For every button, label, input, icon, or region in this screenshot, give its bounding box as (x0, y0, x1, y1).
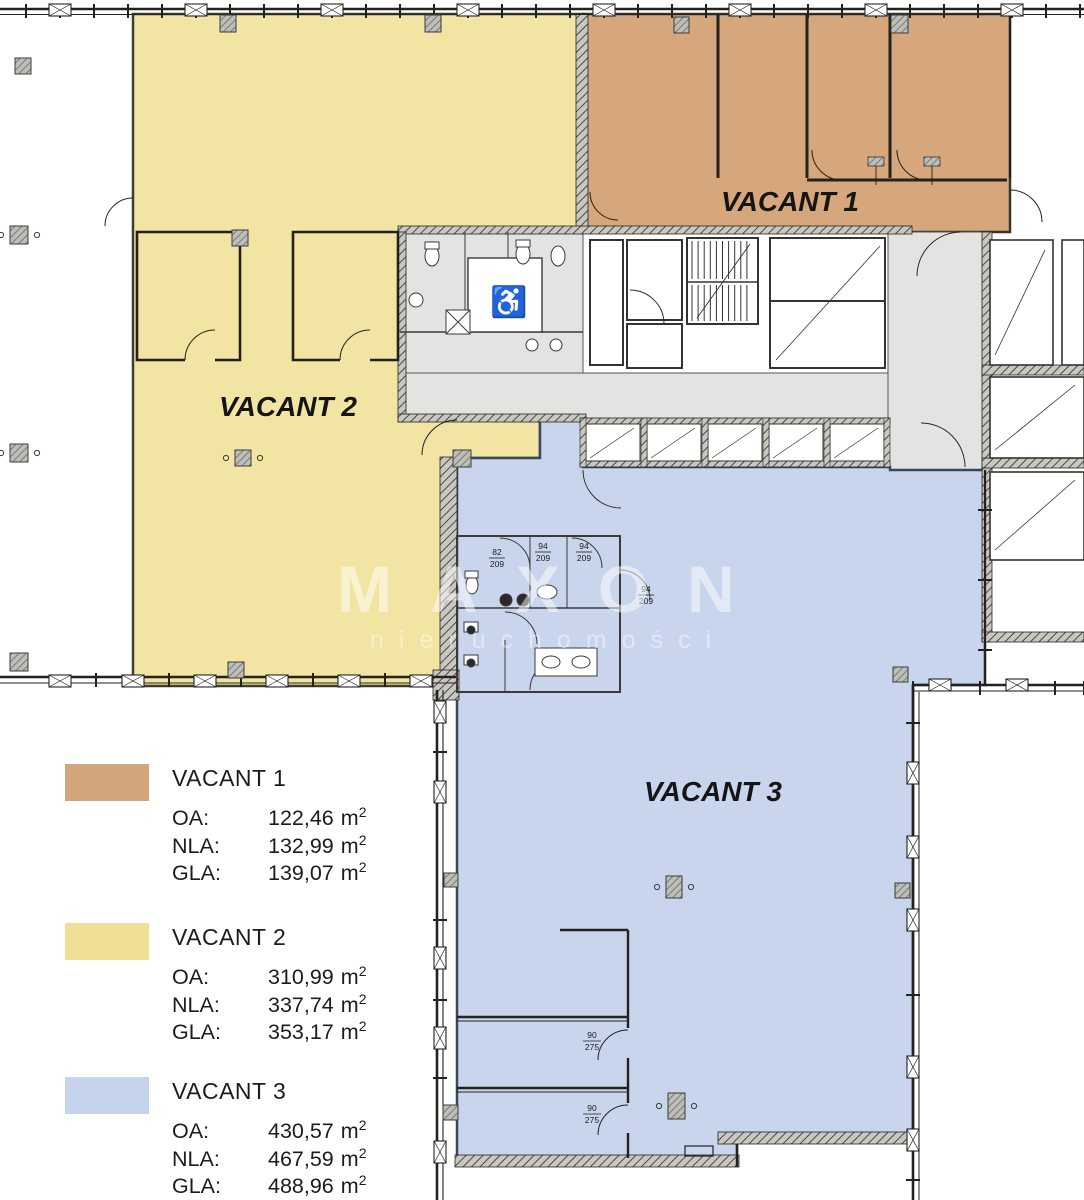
metric-unit: m2 (341, 991, 367, 1018)
legend-row: GLA:139,07m2 (172, 859, 462, 887)
column-icon (15, 58, 31, 74)
metric-label: OA: (172, 965, 268, 990)
plan-decoration (641, 418, 647, 467)
column-icon (220, 15, 236, 32)
region-corridor-v (888, 232, 985, 470)
metric-unit: m2 (341, 859, 367, 886)
metric-unit: m2 (341, 1145, 367, 1172)
plan-decoration (0, 450, 4, 455)
watermark-tagline: nieruchomości (370, 626, 726, 654)
column-icon (453, 450, 471, 467)
metric-unit: m2 (341, 963, 367, 990)
column-icon (666, 876, 682, 898)
plan-decoration (763, 418, 769, 467)
column-icon (228, 662, 244, 678)
metric-label: NLA: (172, 834, 268, 859)
metric-label: GLA: (172, 861, 268, 886)
label-vacant3: VACANT 3 (644, 776, 782, 807)
legend-row: NLA:337,74m2 (172, 991, 462, 1019)
column-icon (425, 15, 441, 32)
legend-row: OA:430,57m2 (172, 1117, 462, 1145)
column-icon (893, 667, 908, 682)
plan-decoration (34, 232, 39, 237)
label-vacant2: VACANT 2 (219, 391, 357, 422)
metric-label: GLA: (172, 1174, 268, 1199)
metric-value: 353,17 (268, 1020, 334, 1045)
plan-decoration (580, 418, 586, 467)
column-icon (235, 450, 251, 466)
column-icon (891, 15, 908, 33)
metric-value: 337,74 (268, 993, 334, 1018)
column-icon (895, 883, 910, 898)
metric-value: 132,99 (268, 834, 334, 859)
legend-swatch-vacant1 (65, 764, 149, 801)
legend-rows: OA:122,46m2 NLA:132,99m2 GLA:139,07m2 (172, 804, 462, 887)
metric-value: 310,99 (268, 965, 334, 990)
plan-decoration (824, 418, 830, 467)
column-icon (10, 226, 28, 244)
metric-value: 139,07 (268, 861, 334, 886)
plan-decoration (34, 450, 39, 455)
column-icon (10, 653, 28, 671)
legend-row: OA:122,46m2 (172, 804, 462, 832)
floor-plan-drawing: ♿ (0, 0, 1084, 1200)
metric-unit: m2 (341, 1018, 367, 1045)
metric-value: 430,57 (268, 1119, 334, 1144)
svg-text:94: 94 (538, 541, 548, 551)
legend-name: VACANT 3 (172, 1078, 286, 1105)
watermark-brand: MAXON (337, 552, 773, 626)
metric-value: 488,96 (268, 1174, 334, 1199)
metric-value: 122,46 (268, 806, 334, 831)
legend-swatch-vacant3 (65, 1077, 149, 1114)
column-icon (10, 444, 28, 462)
legend-rows: OA:430,57m2 NLA:467,59m2 GLA:488,96m2 (172, 1117, 462, 1200)
metric-label: GLA: (172, 1020, 268, 1045)
plan-decoration (0, 232, 4, 237)
label-vacant1: VACANT 1 (721, 186, 859, 217)
region-corridor-h (404, 373, 913, 420)
metric-unit: m2 (341, 804, 367, 831)
svg-text:94: 94 (579, 541, 589, 551)
legend-name: VACANT 1 (172, 765, 286, 792)
metric-unit: m2 (341, 832, 367, 859)
metric-value: 467,59 (268, 1147, 334, 1172)
svg-text:90: 90 (587, 1030, 597, 1040)
legend-row: OA:310,99m2 (172, 963, 462, 991)
column-icon (232, 230, 248, 246)
metric-label: OA: (172, 1119, 268, 1144)
stairwell (687, 238, 758, 324)
legend-row: NLA:467,59m2 (172, 1145, 462, 1173)
corridor-room-row (580, 418, 890, 467)
legend-rows: OA:310,99m2 NLA:337,74m2 GLA:353,17m2 (172, 963, 462, 1046)
legend-name: VACANT 2 (172, 924, 286, 951)
metric-label: NLA: (172, 1147, 268, 1172)
column-icon (668, 1093, 685, 1119)
legend-row: GLA:353,17m2 (172, 1018, 462, 1046)
legend-row: NLA:132,99m2 (172, 832, 462, 860)
svg-text:90: 90 (587, 1103, 597, 1113)
metric-label: OA: (172, 806, 268, 831)
metric-unit: m2 (341, 1117, 367, 1144)
metric-label: NLA: (172, 993, 268, 1018)
floor-plan-page: ♿ (0, 0, 1084, 1200)
column-icon (674, 17, 689, 33)
plan-decoration (884, 418, 890, 467)
plan-decoration (702, 418, 708, 467)
watermark: MAXON nieruchomości (337, 552, 773, 654)
wheelchair-icon: ♿ (490, 284, 527, 319)
metric-unit: m2 (341, 1172, 367, 1199)
svg-text:275: 275 (585, 1042, 599, 1052)
legend-swatch-vacant2 (65, 923, 149, 960)
legend-row: GLA:488,96m2 (172, 1172, 462, 1200)
svg-text:275: 275 (585, 1115, 599, 1125)
